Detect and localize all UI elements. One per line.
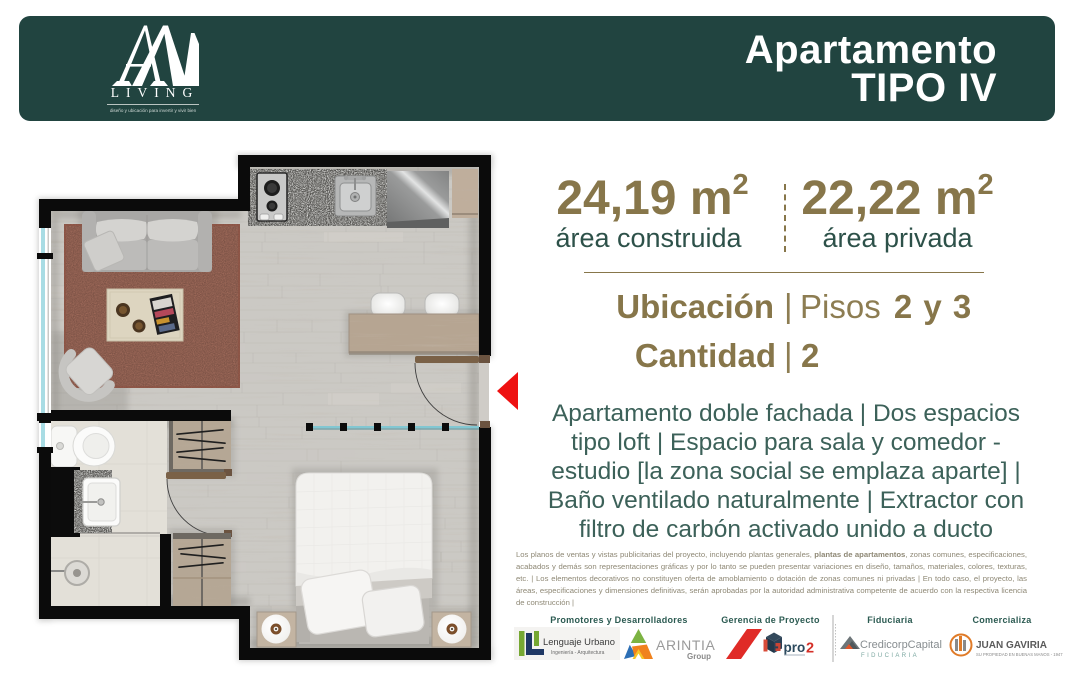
svg-text:CredicorpCapital: CredicorpCapital [860, 639, 942, 651]
svg-text:pro: pro [784, 640, 806, 655]
svg-text:Group: Group [687, 652, 711, 661]
svg-text:2: 2 [806, 641, 814, 657]
svg-text:Ingeniería - Arquitectura: Ingeniería - Arquitectura [551, 650, 605, 656]
svg-text:FIDUCIARIA: FIDUCIARIA [861, 653, 919, 659]
svg-text:JUAN GAVIRIA: JUAN GAVIRIA [976, 640, 1047, 651]
svg-text:SU PROPIEDAD EN BUENAS MANOS -: SU PROPIEDAD EN BUENAS MANOS - 1947 [976, 652, 1063, 657]
svg-text:ARINTIA: ARINTIA [656, 637, 715, 653]
svg-text:Lenguaje Urbano: Lenguaje Urbano [543, 636, 615, 647]
